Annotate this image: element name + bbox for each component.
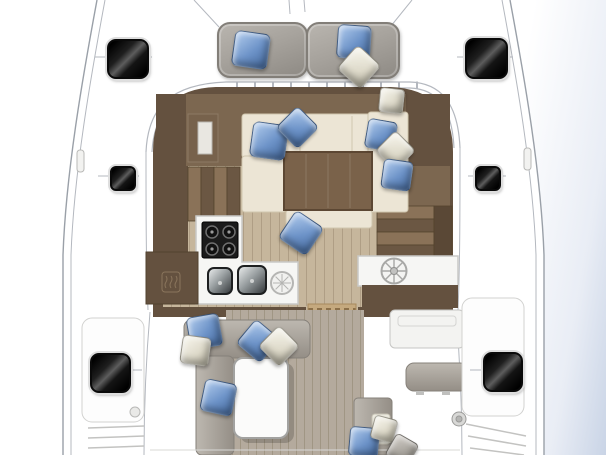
- dinette-aft-bench: [286, 210, 372, 228]
- wheel-icon: [382, 259, 407, 284]
- cockpit-sofa-side: [196, 356, 234, 455]
- nav-counter: [358, 256, 458, 308]
- nav-cabinet: [362, 285, 458, 308]
- winch: [452, 412, 466, 426]
- saloon-fwd-shelf: [244, 94, 406, 114]
- boat-plan-drawing: [0, 0, 606, 455]
- dinette-left-seat: [242, 156, 286, 212]
- aft-bench: [406, 363, 468, 391]
- port-stairs: [188, 167, 240, 221]
- floor-plan: [0, 0, 606, 455]
- dinette-right-seat: [368, 112, 408, 212]
- port-cabinet-column: [156, 94, 188, 264]
- cockpit-sofa-back: [184, 320, 310, 358]
- port-console-panel: [198, 122, 212, 154]
- starboard-stairs: [377, 206, 452, 258]
- aft-corner-cushion: [372, 414, 390, 444]
- cockpit-table: [234, 358, 288, 438]
- dinette: [242, 112, 408, 228]
- drainer: [271, 272, 293, 294]
- saloon: [146, 92, 458, 344]
- starboard-deck-panel: [462, 298, 524, 416]
